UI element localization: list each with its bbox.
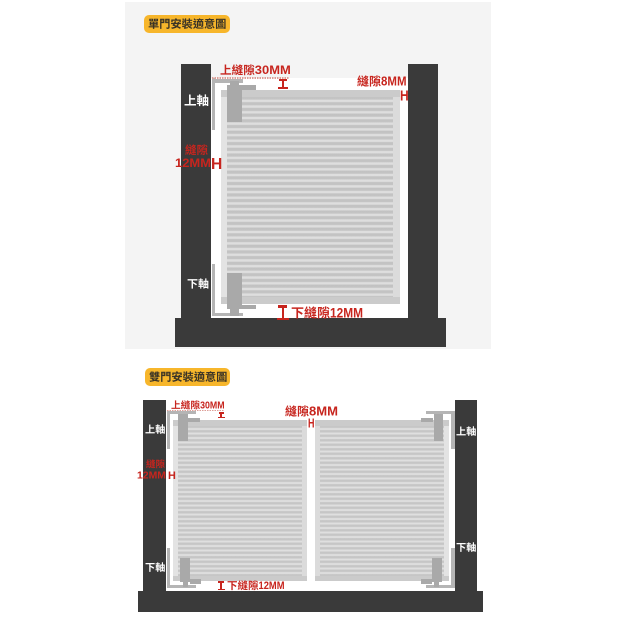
svg-text:H: H (308, 416, 314, 431)
svg-text:8MM: 8MM (381, 74, 407, 89)
svg-text:H: H (211, 155, 222, 172)
svg-text:12MM: 12MM (175, 156, 211, 170)
svg-text:12MM: 12MM (330, 306, 363, 321)
svg-text:H: H (168, 470, 176, 482)
svg-text:H: H (400, 87, 409, 104)
svg-text:12MM: 12MM (259, 580, 285, 592)
svg-text:30MM: 30MM (255, 63, 291, 77)
svg-text:12MM: 12MM (137, 470, 166, 481)
